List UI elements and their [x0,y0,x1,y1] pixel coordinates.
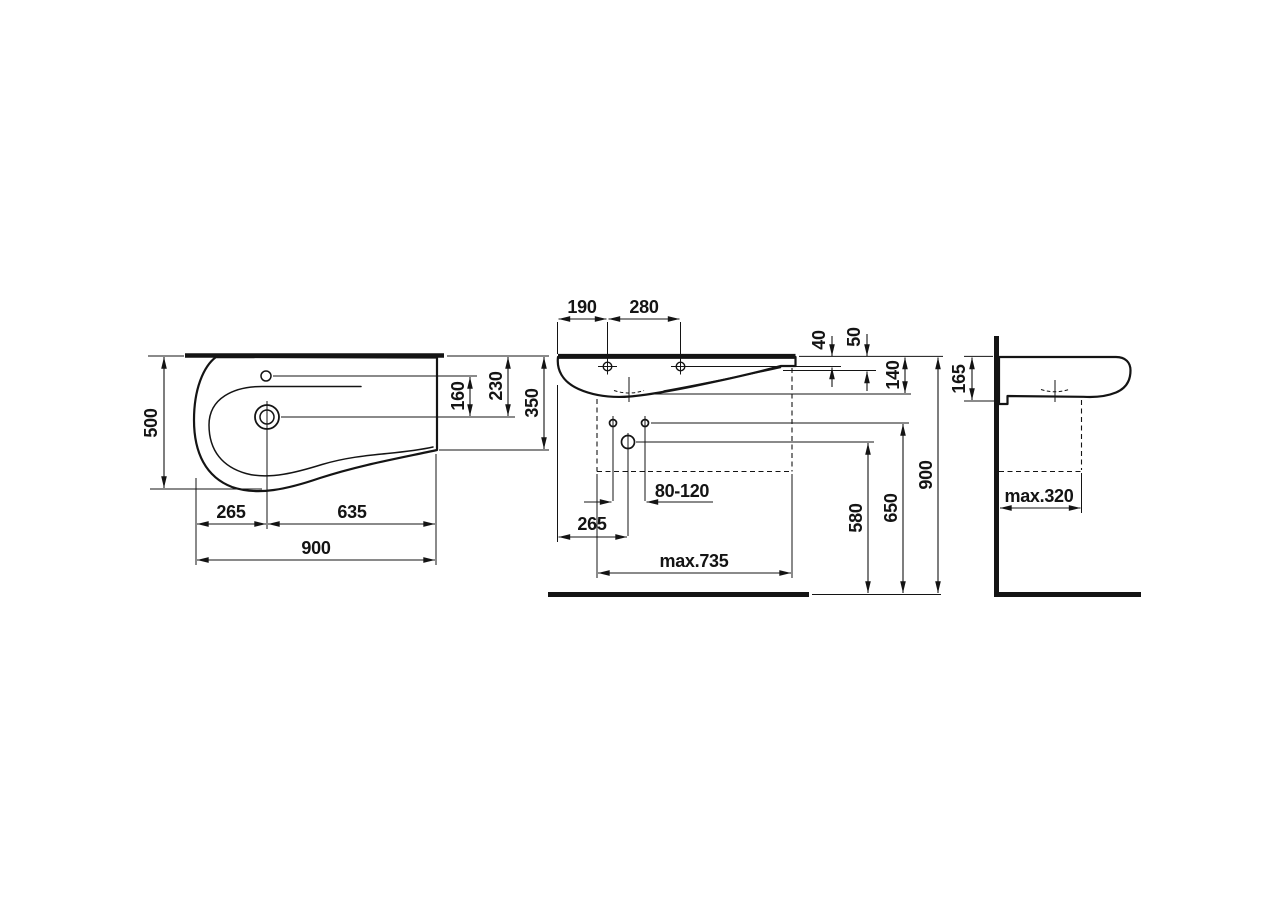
dim-label-350: 350 [522,388,542,417]
dim-label-500: 500 [141,408,161,437]
side-view: 165 max.320 [949,336,1141,597]
dim-front-edge-to-tap-190: 190 [559,297,607,319]
dim-front-top-to-edge-50: 50 [844,327,867,391]
dim-label-40: 40 [809,330,829,350]
dim-side-max-depth-320: max.320 [1000,486,1081,508]
dim-front-tap-spacing-280: 280 [609,297,680,319]
dim-front-rim-height-900: 900 [916,358,938,594]
dim-plan-left-to-drain-265: 265 [197,502,266,524]
dim-plan-right-depth-350: 350 [522,357,544,449]
front-fixing-hole-right [642,416,649,430]
dim-label-160: 160 [448,381,468,410]
dim-front-drain-height-580: 580 [846,443,868,593]
side-basin-profile [999,357,1131,404]
plan-basin-outline [194,357,437,491]
front-basin-outline [558,357,796,397]
dim-front-fixing-height-650: 650 [881,424,903,593]
dim-label-165: 165 [949,364,969,393]
dim-label-190: 190 [567,297,596,317]
dim-label-580: 580 [846,503,866,532]
drawing-svg: 500 160 230 350 265 635 900 [0,0,1280,900]
dim-side-rim-to-underside-165: 165 [949,358,972,401]
dim-plan-depth-500: 500 [141,357,164,488]
dim-label-max-320: max.320 [1005,486,1074,506]
dim-plan-tap-to-drain-160: 160 [448,377,470,416]
dim-front-top-to-tap-axis-40: 40 [809,330,832,387]
dim-plan-top-to-drain-230: 230 [486,357,508,416]
dim-label-front-265: 265 [577,514,606,534]
dim-front-edge-to-drain-265: 265 [559,514,628,537]
dim-label-650: 650 [881,493,901,522]
front-drain-outlet [622,433,635,451]
dim-label-front-900: 900 [916,460,936,489]
dim-front-max-width-735: max.735 [598,551,791,573]
dim-front-fixing-range-80-120: 80-120 [584,481,713,502]
dim-label-230: 230 [486,371,506,400]
dim-label-50: 50 [844,327,864,347]
dim-label-635: 635 [337,502,366,522]
dim-label-plan-900: 900 [301,538,330,558]
dim-label-plan-265: 265 [216,502,245,522]
front-view: 190 280 40 50 140 80-120 265 [548,297,943,595]
dimension-drawing-canvas: 500 160 230 350 265 635 900 [0,0,1280,900]
dim-plan-overall-width-900: 900 [197,538,435,560]
front-fixing-hole-left [610,416,617,430]
plan-view: 500 160 230 350 265 635 900 [141,356,549,566]
dim-plan-drain-to-right-635: 635 [268,502,435,524]
dim-label-max-735: max.735 [660,551,729,571]
dim-label-280: 280 [629,297,658,317]
dim-label-80-120: 80-120 [655,481,710,501]
dim-front-top-to-bottom-140: 140 [883,358,905,394]
dim-label-140: 140 [883,360,903,389]
